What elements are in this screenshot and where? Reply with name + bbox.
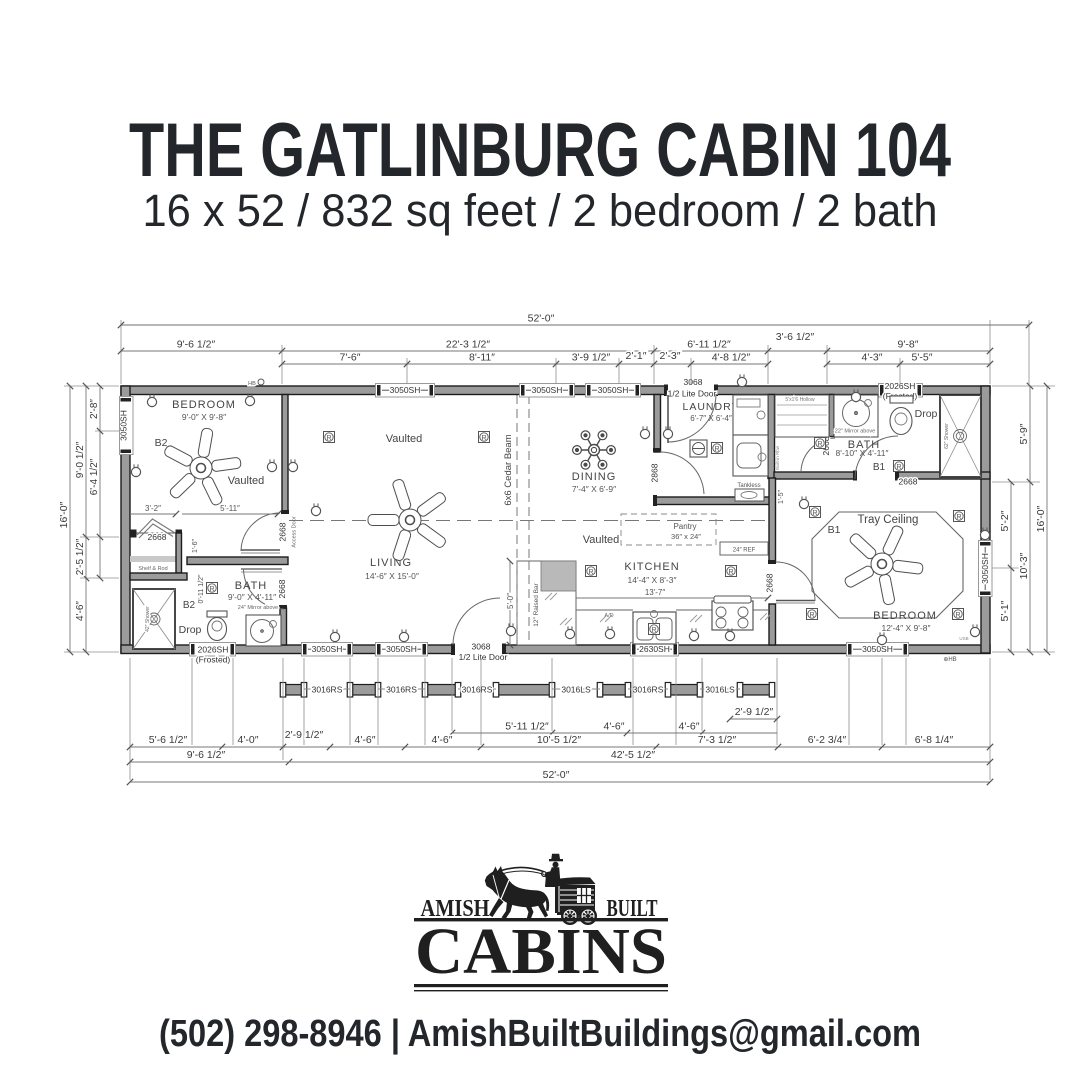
svg-text:B2: B2 xyxy=(155,437,168,449)
svg-text:R: R xyxy=(588,569,593,576)
svg-text:5'x1'6 Hollow: 5'x1'6 Hollow xyxy=(785,397,815,403)
svg-text:R: R xyxy=(326,435,331,442)
svg-text:BEDROOM: BEDROOM xyxy=(873,610,937,622)
svg-text:14'-4″ X 8'-3″: 14'-4″ X 8'-3″ xyxy=(628,575,677,585)
svg-text:3016LS: 3016LS xyxy=(705,685,735,695)
svg-text:12'-4″ X 9'-8″: 12'-4″ X 9'-8″ xyxy=(882,623,931,633)
svg-text:9'-0″ X 4'-11″: 9'-0″ X 4'-11″ xyxy=(228,592,276,602)
svg-text:Built-in Rbw: Built-in Rbw xyxy=(775,445,780,470)
svg-text:Vaulted: Vaulted xyxy=(386,433,423,445)
svg-text:3016RS: 3016RS xyxy=(312,685,343,695)
svg-text:9'-8″: 9'-8″ xyxy=(898,339,919,351)
svg-text:6'-8 1/4″: 6'-8 1/4″ xyxy=(915,734,954,746)
svg-text:B2: B2 xyxy=(183,600,196,611)
svg-text:6'-4 1/2″: 6'-4 1/2″ xyxy=(89,458,100,495)
svg-text:(Frosted): (Frosted) xyxy=(196,655,231,665)
svg-text:LAUNDRY: LAUNDRY xyxy=(683,401,740,413)
svg-text:DINING: DINING xyxy=(572,471,617,483)
svg-text:3016RS: 3016RS xyxy=(462,685,493,695)
svg-text:42'-5 1/2″: 42'-5 1/2″ xyxy=(611,749,656,761)
svg-text:2026SH: 2026SH xyxy=(198,645,229,655)
svg-text:3050SH: 3050SH xyxy=(119,410,129,441)
svg-text:2668: 2668 xyxy=(278,522,288,541)
svg-text:2668: 2668 xyxy=(277,579,287,598)
svg-text:Tray Ceiling: Tray Ceiling xyxy=(858,514,919,526)
svg-text:2668: 2668 xyxy=(899,477,918,487)
svg-text:B1: B1 xyxy=(873,462,886,473)
svg-text:R: R xyxy=(812,510,817,517)
svg-text:Vaulted: Vaulted xyxy=(583,534,620,546)
svg-text:12″ Raised Bar: 12″ Raised Bar xyxy=(533,582,540,626)
svg-text:3050SH: 3050SH xyxy=(386,644,417,654)
svg-text:16'-0″: 16'-0″ xyxy=(1035,505,1047,532)
svg-text:14'-6″ X 15'-0″: 14'-6″ X 15'-0″ xyxy=(365,571,419,581)
svg-text:Drop: Drop xyxy=(915,408,938,420)
svg-text:R: R xyxy=(956,514,961,521)
svg-text:5'-2″: 5'-2″ xyxy=(999,510,1011,531)
svg-text:THE GATLINBURG CABIN 104: THE GATLINBURG CABIN 104 xyxy=(129,108,951,193)
svg-text:3050SH: 3050SH xyxy=(980,553,990,584)
svg-text:0'-11 1/2″: 0'-11 1/2″ xyxy=(198,574,205,604)
svg-text:36″ x 24″: 36″ x 24″ xyxy=(671,532,701,541)
svg-text:13'-7″: 13'-7″ xyxy=(645,588,666,597)
svg-text:3016RS: 3016RS xyxy=(633,685,664,695)
svg-text:Drop: Drop xyxy=(179,624,202,636)
svg-text:3050SH: 3050SH xyxy=(862,644,893,654)
svg-text:1'-6″: 1'-6″ xyxy=(192,539,199,553)
svg-text:Tankless: Tankless xyxy=(737,483,760,489)
svg-text:2668: 2668 xyxy=(148,532,167,542)
svg-text:3068: 3068 xyxy=(684,377,703,387)
svg-text:R: R xyxy=(209,586,214,593)
svg-text:KITCHEN: KITCHEN xyxy=(624,561,679,573)
svg-text:⊕HB: ⊕HB xyxy=(943,657,956,663)
svg-text:3'-2″: 3'-2″ xyxy=(145,504,161,513)
svg-text:4'-6″: 4'-6″ xyxy=(355,734,376,746)
svg-text:R: R xyxy=(955,612,960,619)
svg-text:22'-3 1/2″: 22'-3 1/2″ xyxy=(446,339,491,351)
svg-text:16 x 52 / 832 sq feet / 2 bedr: 16 x 52 / 832 sq feet / 2 bedroom / 2 ba… xyxy=(143,185,938,236)
svg-text:3'-6 1/2″: 3'-6 1/2″ xyxy=(776,331,815,343)
svg-text:CABINS: CABINS xyxy=(415,915,667,988)
svg-text:R: R xyxy=(651,627,656,634)
svg-text:R: R xyxy=(809,612,814,619)
svg-text:2'-5 1/2″: 2'-5 1/2″ xyxy=(75,538,86,575)
svg-text:1'-5″: 1'-5″ xyxy=(778,490,785,504)
svg-text:4'-6″: 4'-6″ xyxy=(679,721,700,733)
svg-text:R: R xyxy=(896,464,901,471)
svg-text:(502) 298-8946 | AmishBuiltBui: (502) 298-8946 | AmishBuiltBuildings@gma… xyxy=(159,1013,921,1055)
svg-text:16'-0″: 16'-0″ xyxy=(58,501,70,528)
svg-text:Pantry: Pantry xyxy=(673,522,696,531)
svg-text:5'-0″: 5'-0″ xyxy=(506,593,515,609)
svg-text:BATH: BATH xyxy=(235,580,268,592)
svg-text:6'-7″ X 6'-4″: 6'-7″ X 6'-4″ xyxy=(690,414,732,423)
svg-text:1/2 Lite Door: 1/2 Lite Door xyxy=(668,389,717,399)
svg-text:8'-11″: 8'-11″ xyxy=(469,352,495,364)
svg-text:6x6 Cedar Beam: 6x6 Cedar Beam xyxy=(503,434,514,505)
svg-text:9'-6 1/2″: 9'-6 1/2″ xyxy=(177,339,216,351)
svg-text:2868: 2868 xyxy=(650,463,660,482)
svg-text:9'-0 1/2″: 9'-0 1/2″ xyxy=(75,441,86,478)
svg-text:22″ Mirror above: 22″ Mirror above xyxy=(835,429,875,435)
svg-text:4'-3″: 4'-3″ xyxy=(862,352,883,364)
svg-text:3068: 3068 xyxy=(472,642,491,652)
svg-text:4'-0″: 4'-0″ xyxy=(238,734,259,746)
svg-text:3016RS: 3016RS xyxy=(386,685,417,695)
svg-text:10'-3″: 10'-3″ xyxy=(1018,552,1030,579)
svg-text:2'-8″: 2'-8″ xyxy=(89,399,100,419)
svg-text:24″ REF: 24″ REF xyxy=(733,548,756,554)
svg-text:2'-1″: 2'-1″ xyxy=(626,350,647,362)
svg-text:8'-10″ X 4'-11″: 8'-10″ X 4'-11″ xyxy=(835,448,888,458)
svg-text:Access Door: Access Door xyxy=(292,516,298,547)
svg-text:62″ Shower: 62″ Shower xyxy=(944,423,950,449)
svg-text:R: R xyxy=(817,441,822,448)
svg-text:USB: USB xyxy=(959,636,968,641)
svg-text:R: R xyxy=(714,446,719,453)
svg-text:4'-6″: 4'-6″ xyxy=(75,601,86,621)
svg-text:2668: 2668 xyxy=(765,573,775,592)
svg-text:Shelf & Rod: Shelf & Rod xyxy=(138,566,167,572)
svg-text:2630SH: 2630SH xyxy=(639,644,670,654)
svg-text:2'-9 1/2″: 2'-9 1/2″ xyxy=(285,729,324,741)
svg-text:42″ Shower: 42″ Shower xyxy=(145,606,151,632)
svg-text:5'-9″: 5'-9″ xyxy=(1018,423,1030,444)
svg-text:5'-1″: 5'-1″ xyxy=(999,600,1011,621)
svg-text:2'-3″: 2'-3″ xyxy=(660,350,681,362)
svg-text:LIVING: LIVING xyxy=(370,557,412,569)
svg-text:4'-6″: 4'-6″ xyxy=(604,721,625,733)
svg-text:3050SH: 3050SH xyxy=(532,385,563,395)
svg-text:10'-5 1/2″: 10'-5 1/2″ xyxy=(537,734,582,746)
svg-text:BEDROOM: BEDROOM xyxy=(172,399,236,411)
svg-text:B1: B1 xyxy=(828,524,841,536)
svg-text:3016LS: 3016LS xyxy=(561,685,591,695)
svg-text:5'-11″: 5'-11″ xyxy=(220,504,240,513)
svg-text:52'-0″: 52'-0″ xyxy=(528,313,555,325)
svg-text:52'-0″: 52'-0″ xyxy=(543,769,570,781)
svg-text:7'-6″: 7'-6″ xyxy=(340,352,361,364)
svg-text:Vaulted: Vaulted xyxy=(228,475,265,487)
svg-text:3050SH: 3050SH xyxy=(312,644,343,654)
svg-text:7'-4″ X 6'-9″: 7'-4″ X 6'-9″ xyxy=(572,484,616,494)
svg-text:5'-6 1/2″: 5'-6 1/2″ xyxy=(149,734,188,746)
svg-text:5'-11 1/2″: 5'-11 1/2″ xyxy=(505,721,549,733)
svg-text:9'-0″ X 9'-8″: 9'-0″ X 9'-8″ xyxy=(182,412,226,422)
svg-text:3050SH: 3050SH xyxy=(390,385,421,395)
svg-text:6'-11 1/2″: 6'-11 1/2″ xyxy=(687,339,731,351)
svg-text:2'-9 1/2″: 2'-9 1/2″ xyxy=(735,706,774,718)
svg-text:R: R xyxy=(728,569,733,576)
svg-text:4'-8 1/2″: 4'-8 1/2″ xyxy=(712,352,751,364)
svg-text:3'-9 1/2″: 3'-9 1/2″ xyxy=(572,352,611,364)
svg-text:7'-3 1/2″: 7'-3 1/2″ xyxy=(698,734,737,746)
svg-text:9'-6 1/2″: 9'-6 1/2″ xyxy=(187,749,226,761)
svg-text:1/2 Lite Door: 1/2 Lite Door xyxy=(459,652,508,662)
svg-text:3050SH: 3050SH xyxy=(598,385,629,395)
svg-text:5'-5″: 5'-5″ xyxy=(912,352,933,364)
svg-text:HB: HB xyxy=(248,381,256,387)
svg-text:R: R xyxy=(481,435,486,442)
svg-text:24″ Mirror above: 24″ Mirror above xyxy=(238,605,278,611)
svg-text:6'-2 3/4″: 6'-2 3/4″ xyxy=(808,734,847,746)
svg-text:4'-6″: 4'-6″ xyxy=(432,734,453,746)
